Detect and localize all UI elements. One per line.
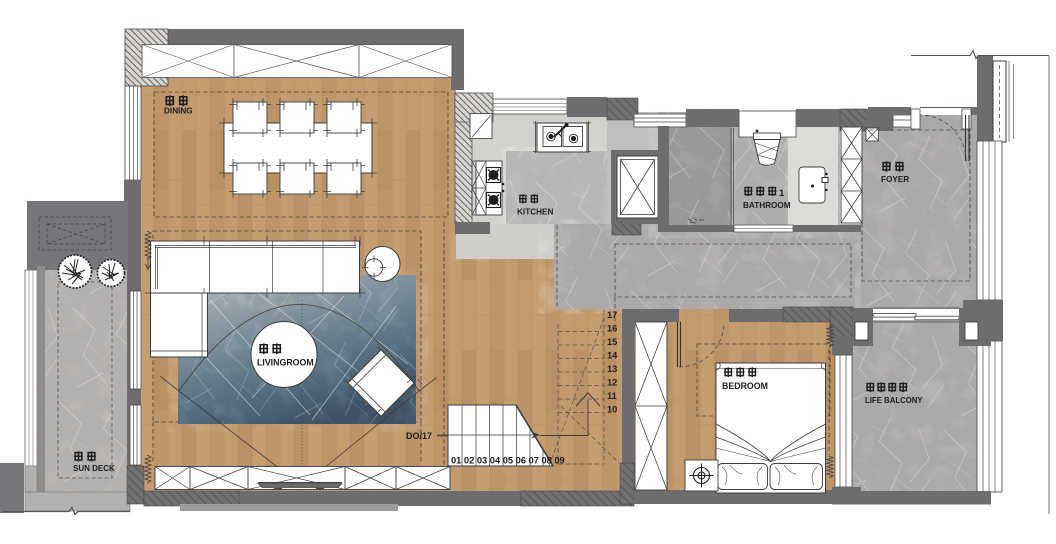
svg-text:DO/17: DO/17 bbox=[406, 431, 432, 441]
svg-text:SUN DECK: SUN DECK bbox=[73, 464, 115, 473]
svg-text:10: 10 bbox=[607, 405, 617, 415]
svg-text:16: 16 bbox=[607, 324, 617, 334]
svg-text:11: 11 bbox=[607, 391, 617, 401]
svg-text:15: 15 bbox=[607, 337, 617, 347]
svg-text:14: 14 bbox=[607, 351, 618, 361]
svg-text:01 02 03 04 05 06 07 08 09: 01 02 03 04 05 06 07 08 09 bbox=[451, 456, 565, 466]
svg-text:LIVINGROOM: LIVINGROOM bbox=[257, 358, 314, 368]
svg-text:12: 12 bbox=[607, 378, 617, 388]
svg-text:17: 17 bbox=[607, 310, 617, 320]
svg-text:KITCHEN: KITCHEN bbox=[517, 208, 553, 217]
svg-text:1: 1 bbox=[779, 188, 785, 199]
svg-text:DINING: DINING bbox=[164, 107, 193, 116]
svg-text:BATHROOM: BATHROOM bbox=[743, 201, 791, 210]
svg-text:FOYER: FOYER bbox=[881, 175, 909, 184]
svg-text:BEDROOM: BEDROOM bbox=[722, 381, 768, 391]
svg-text:13: 13 bbox=[607, 364, 617, 374]
svg-text:LIFE BALCONY: LIFE BALCONY bbox=[865, 396, 923, 405]
